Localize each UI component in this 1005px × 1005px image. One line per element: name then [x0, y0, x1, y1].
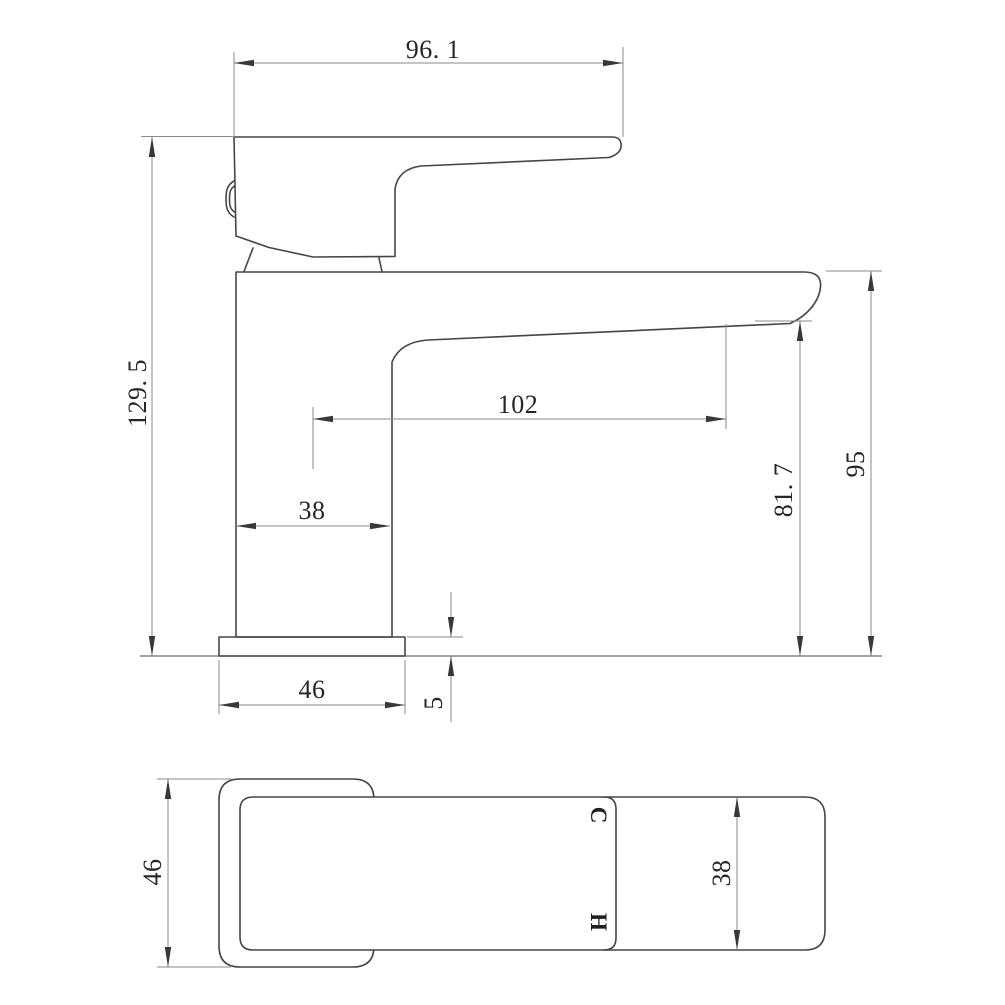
dim-base-width-label: 46 [299, 675, 326, 704]
arrowhead-right [370, 523, 390, 529]
body-spout-outline [236, 272, 821, 637]
dim-overall-height: 129. 5 [123, 137, 233, 657]
dim-handle-length-label: 96. 1 [406, 35, 461, 64]
arrowhead-left [219, 702, 239, 708]
dim-spout-reach: 102 [313, 324, 726, 469]
dim-base-thickness-label: 5 [419, 696, 448, 710]
faucet-technical-drawing: 96. 1 129. 5 102 38 46 5 8 [0, 0, 1005, 1005]
hot-indicator-label: H [586, 913, 611, 931]
dim-plan-spout-width-label: 38 [707, 860, 736, 887]
dim-plan-base-width: 46 [138, 779, 231, 967]
arrowhead-down [149, 636, 155, 656]
dim-base-width: 46 [219, 660, 405, 714]
dim-plan-base-width-label: 46 [138, 859, 167, 886]
dim-handle-length: 96. 1 [234, 35, 623, 137]
dim-body-width: 38 [236, 496, 390, 529]
arrowhead-left [236, 523, 256, 529]
arrowhead-up [165, 779, 171, 799]
arrowhead-down [448, 617, 454, 637]
arrowhead-up [448, 656, 454, 676]
dim-spout-top-height-label: 95 [841, 451, 870, 478]
arrowhead-up [797, 321, 803, 341]
dim-overall-height-label: 129. 5 [123, 359, 152, 427]
dim-spout-top-height: 95 [826, 271, 882, 656]
arrowhead-down [165, 947, 171, 967]
dim-body-width-label: 38 [299, 496, 326, 525]
arrowhead-right [706, 416, 726, 422]
arrowhead-right [603, 60, 623, 66]
dim-spout-reach-label: 102 [498, 390, 539, 419]
bonnet-lines [244, 248, 382, 272]
arrowhead-left [313, 416, 333, 422]
arrowhead-left [234, 60, 254, 66]
arrowhead-down [797, 636, 803, 656]
handle-outline [234, 137, 621, 257]
plan-view: C H 46 38 [138, 779, 825, 967]
technical-drawing-page: 96. 1 129. 5 102 38 46 5 8 [0, 0, 1005, 1005]
arrowhead-down [868, 636, 874, 656]
cold-indicator-label: C [586, 807, 611, 824]
cartridge-cap-arcs [226, 181, 235, 217]
base-plate [219, 637, 405, 656]
arrowhead-right [385, 702, 405, 708]
dim-outlet-height-label: 81. 7 [769, 463, 798, 518]
dim-outlet-height: 81. 7 [755, 321, 812, 656]
dim-base-thickness: 5 [407, 592, 463, 722]
arrowhead-up [868, 271, 874, 291]
arrowhead-up [149, 137, 155, 157]
